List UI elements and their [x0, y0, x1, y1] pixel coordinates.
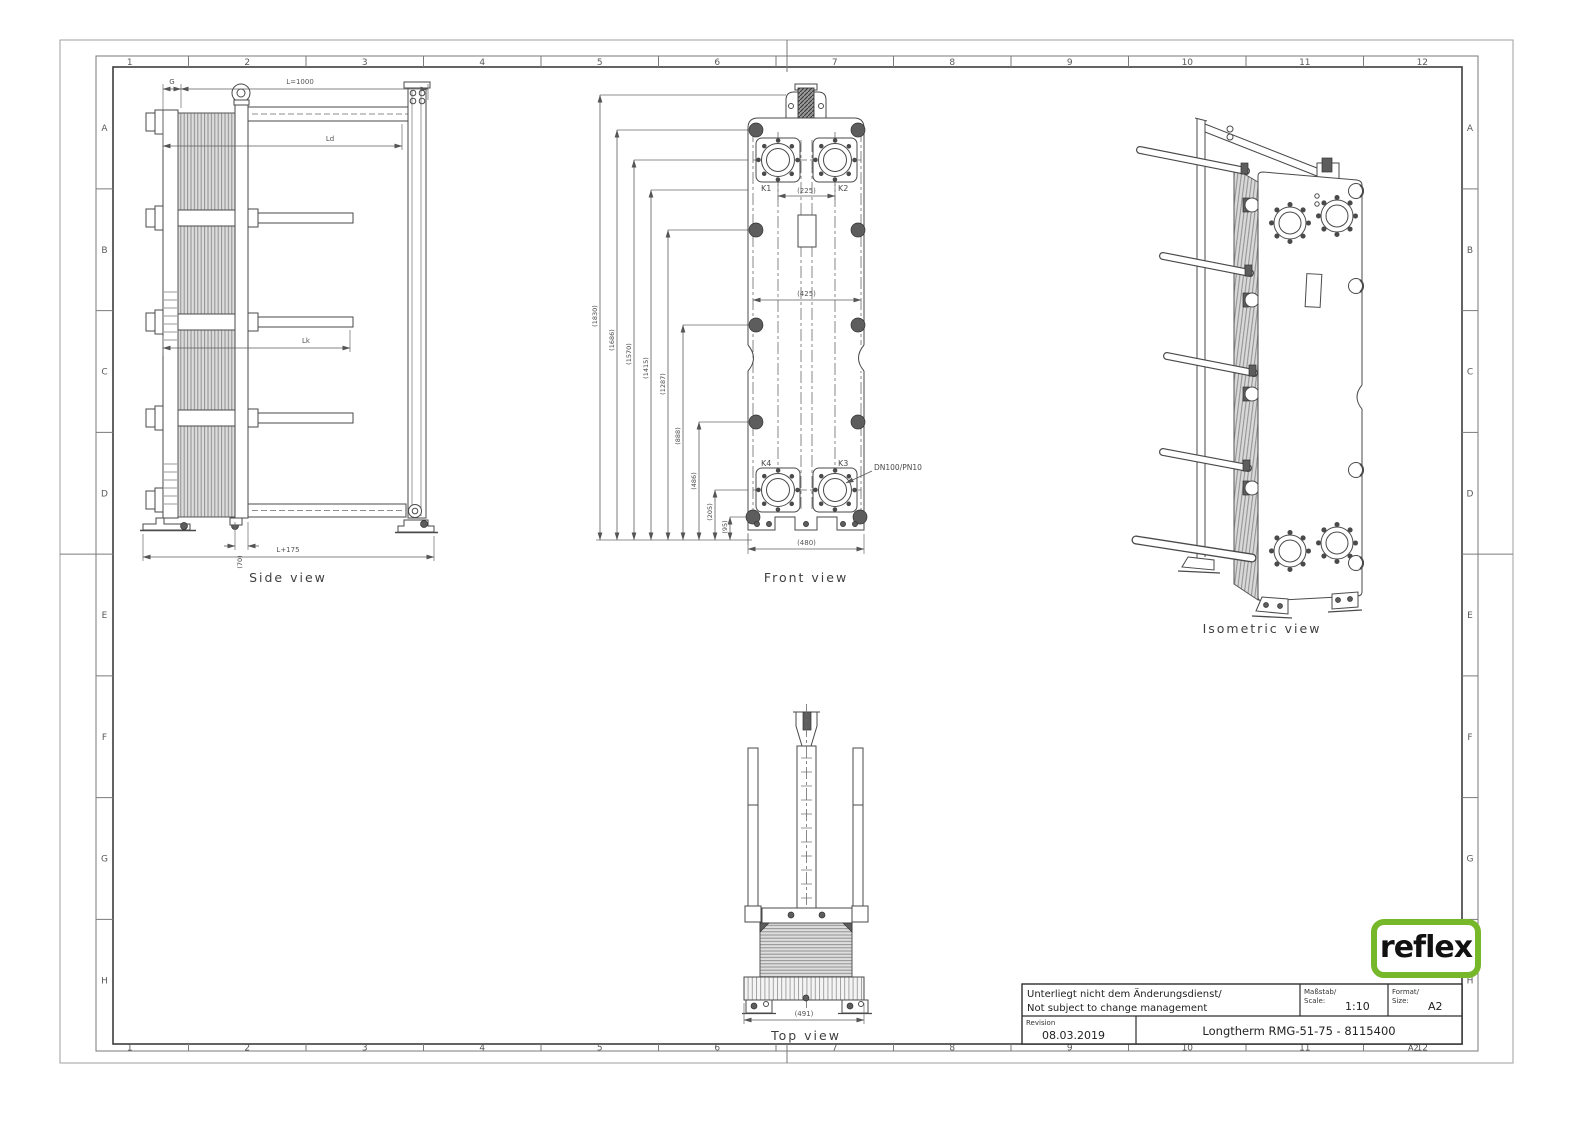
grid-row: D	[1467, 489, 1474, 499]
grid-col: 9	[1067, 1044, 1073, 1054]
grid-col: 8	[949, 58, 955, 68]
format-value: A2	[1428, 1000, 1443, 1013]
height-dim: (205)	[706, 503, 714, 520]
port-k2	[813, 138, 857, 182]
grid-col: 5	[597, 58, 603, 68]
grid-column-labels-bottom: 1 2 3 4 5 6 7 8 9 10 11 12	[127, 1044, 1428, 1054]
grid-row: G	[1467, 855, 1474, 865]
grid-col: 3	[362, 58, 368, 68]
dim-length: L=1000	[286, 78, 314, 86]
format-label-en: Size:	[1392, 997, 1409, 1005]
top-view-label: Top view	[770, 1028, 841, 1043]
carrying-rail-left	[748, 748, 758, 906]
grid-row: A	[101, 124, 108, 134]
port-label-k2: K2	[838, 184, 848, 193]
front-view: (1830) (1686) (1570) (1415) (1287) (888)…	[591, 84, 922, 585]
scale-label-de: Maßstab/	[1304, 988, 1337, 996]
iso-nameplate-slot	[1305, 274, 1322, 308]
grid-col: 10	[1182, 58, 1194, 68]
dim-overall: L+175	[276, 546, 299, 554]
engineering-drawing-sheet: 1 2 3 4 5 6 7 8 9 10 11 12 1 2 3 4 5 6 7…	[0, 0, 1594, 1129]
grid-col: 1	[127, 58, 133, 68]
grid-row: G	[101, 855, 108, 865]
grid-row: E	[102, 611, 108, 621]
grid-col: 7	[832, 1044, 838, 1054]
grid-col: 10	[1182, 1044, 1194, 1054]
plate-pack-iso	[1234, 168, 1258, 600]
top-view: (491) Top view	[742, 704, 872, 1043]
carrying-rail-right	[853, 748, 863, 906]
height-dim: (1570)	[625, 343, 633, 365]
height-dim: (486)	[690, 472, 698, 489]
height-dim: (1287)	[659, 373, 667, 395]
port-label-k1: K1	[761, 184, 771, 193]
revision-date: 08.03.2019	[1042, 1029, 1105, 1042]
grid-col: 12	[1417, 58, 1428, 68]
grid-row: B	[101, 246, 107, 256]
port-k4	[756, 468, 800, 512]
grid-row: B	[1467, 246, 1473, 256]
grid-col: 2	[244, 58, 250, 68]
grid-row: A	[1467, 124, 1474, 134]
height-dim: (888)	[674, 427, 682, 444]
grid-col: 5	[597, 1044, 603, 1054]
grid-col: 4	[479, 58, 485, 68]
height-dim: (95)	[721, 520, 729, 533]
tie-bolt-nuts-left	[146, 110, 163, 512]
height-dim: (1415)	[642, 357, 650, 379]
grid-col: 8	[949, 1044, 955, 1054]
grid-row: C	[1467, 368, 1473, 378]
dim-lk: Lk	[302, 337, 311, 345]
grid-col: 7	[832, 58, 838, 68]
sheet-corner-code: A2	[1408, 1044, 1419, 1053]
grid-col: 2	[244, 1044, 250, 1054]
grid-row: D	[101, 489, 108, 499]
height-dim: (1830)	[591, 305, 599, 327]
feet	[140, 518, 438, 533]
change-note-de: Unterliegt nicht dem Änderungsdienst/	[1027, 987, 1222, 1000]
nameplate-slot	[798, 215, 816, 247]
grid-col: 4	[479, 1044, 485, 1054]
isometric-view-label: Isometric view	[1203, 621, 1322, 636]
grid-col: 1	[127, 1044, 133, 1054]
dim-bolt-width: (425)	[797, 290, 816, 298]
grid-col: 3	[362, 1044, 368, 1054]
grid-col: 6	[714, 1044, 720, 1054]
title-block: Unterliegt nicht dem Änderungsdienst/ No…	[1022, 984, 1462, 1044]
port-k1	[756, 138, 800, 182]
tie-bolts	[248, 209, 353, 427]
dim-g: G	[169, 78, 174, 86]
change-note-en: Not subject to change management	[1027, 1003, 1207, 1014]
scale-label-en: Scale:	[1304, 997, 1325, 1005]
reflex-logo: reflex	[1374, 922, 1478, 975]
logo-text: reflex	[1380, 930, 1473, 965]
dim-top-width: (491)	[795, 1010, 814, 1018]
isometric-view: Isometric view	[1136, 118, 1367, 636]
front-view-label: Front view	[764, 570, 848, 585]
grid-col: 11	[1299, 1044, 1310, 1054]
format-label-de: Format/	[1392, 988, 1420, 996]
grid-row: F	[1467, 733, 1472, 743]
grid-row: H	[101, 976, 108, 986]
grid-row: F	[102, 733, 107, 743]
hanger-block	[798, 88, 814, 118]
grid-col: 6	[714, 58, 720, 68]
port-label-k3: K3	[838, 459, 848, 468]
grid-col: 11	[1299, 58, 1310, 68]
drawing-page: 1 2 3 4 5 6 7 8 9 10 11 12 1 2 3 4 5 6 7…	[0, 0, 1594, 1129]
grid-row: E	[1467, 611, 1473, 621]
plate-pack-top	[760, 923, 852, 977]
side-view: G L=1000 Ld Lk (70) L+175 Side view	[140, 78, 438, 585]
dim-ld: Ld	[326, 135, 334, 143]
connection-spec: DN100/PN10	[874, 463, 922, 472]
dim-port-spacing: (225)	[797, 187, 816, 195]
revision-label: Revision	[1026, 1019, 1055, 1027]
scale-value: 1:10	[1345, 1000, 1370, 1013]
grid-row: C	[101, 368, 107, 378]
port-label-k4: K4	[761, 459, 771, 468]
grid-col: 9	[1067, 58, 1073, 68]
drawing-title: Longtherm RMG-51-75 - 8115400	[1202, 1024, 1395, 1038]
side-view-label: Side view	[249, 570, 327, 585]
port-k3	[813, 468, 857, 512]
height-dim: (1686)	[608, 329, 616, 351]
dim-width: (480)	[797, 539, 816, 547]
